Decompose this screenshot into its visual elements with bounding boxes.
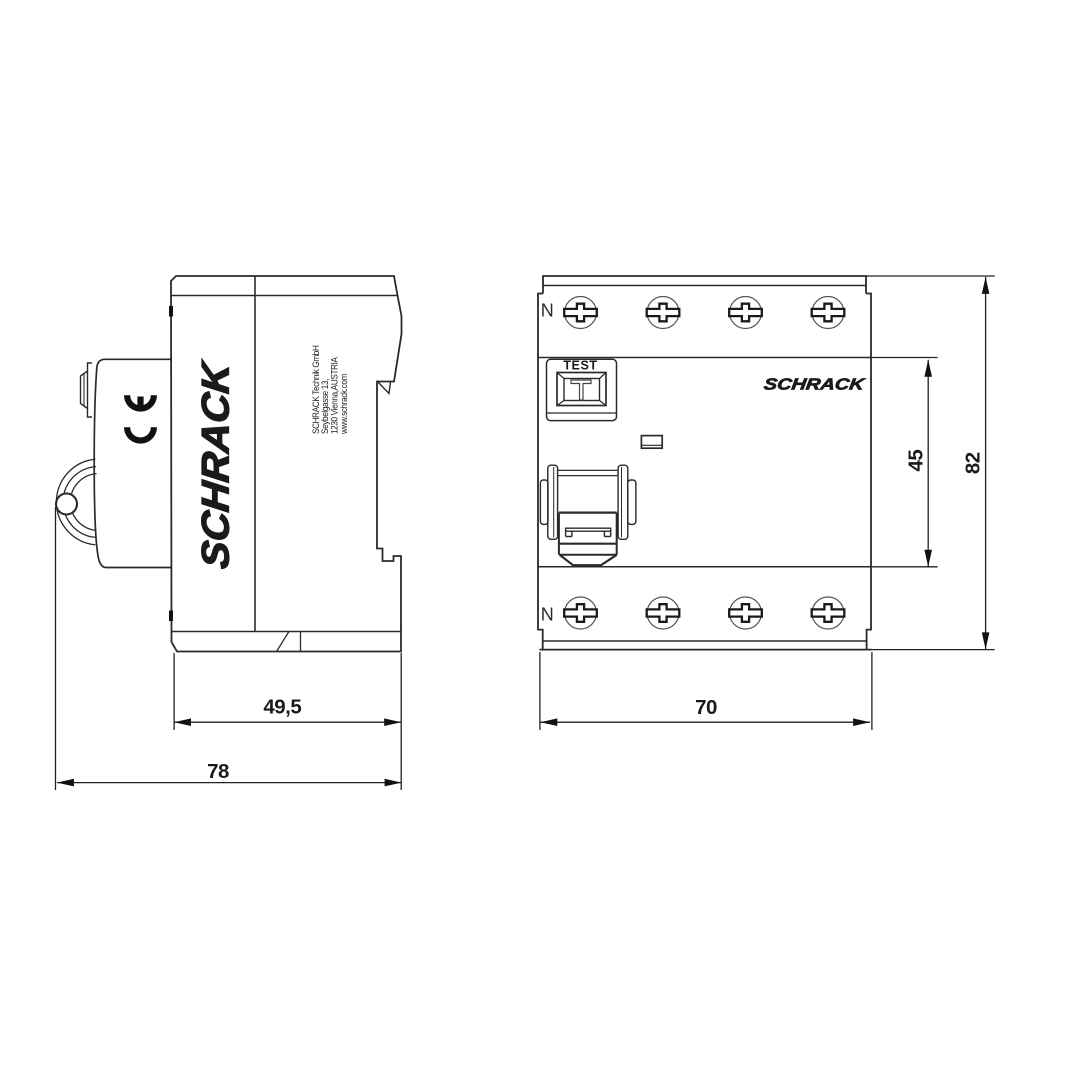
svg-text:N: N [541,604,554,624]
svg-text:N: N [541,301,554,321]
svg-text:SCHRACK: SCHRACK [763,376,867,394]
svg-text:SCHRACK: SCHRACK [195,358,237,571]
svg-text:49,5: 49,5 [263,696,301,719]
svg-text:45: 45 [905,450,928,472]
svg-text:TEST: TEST [563,358,597,372]
svg-text:www.schrack.com: www.schrack.com [338,374,349,435]
svg-text:82: 82 [962,452,985,474]
svg-text:70: 70 [695,696,717,719]
svg-text:78: 78 [207,760,229,783]
